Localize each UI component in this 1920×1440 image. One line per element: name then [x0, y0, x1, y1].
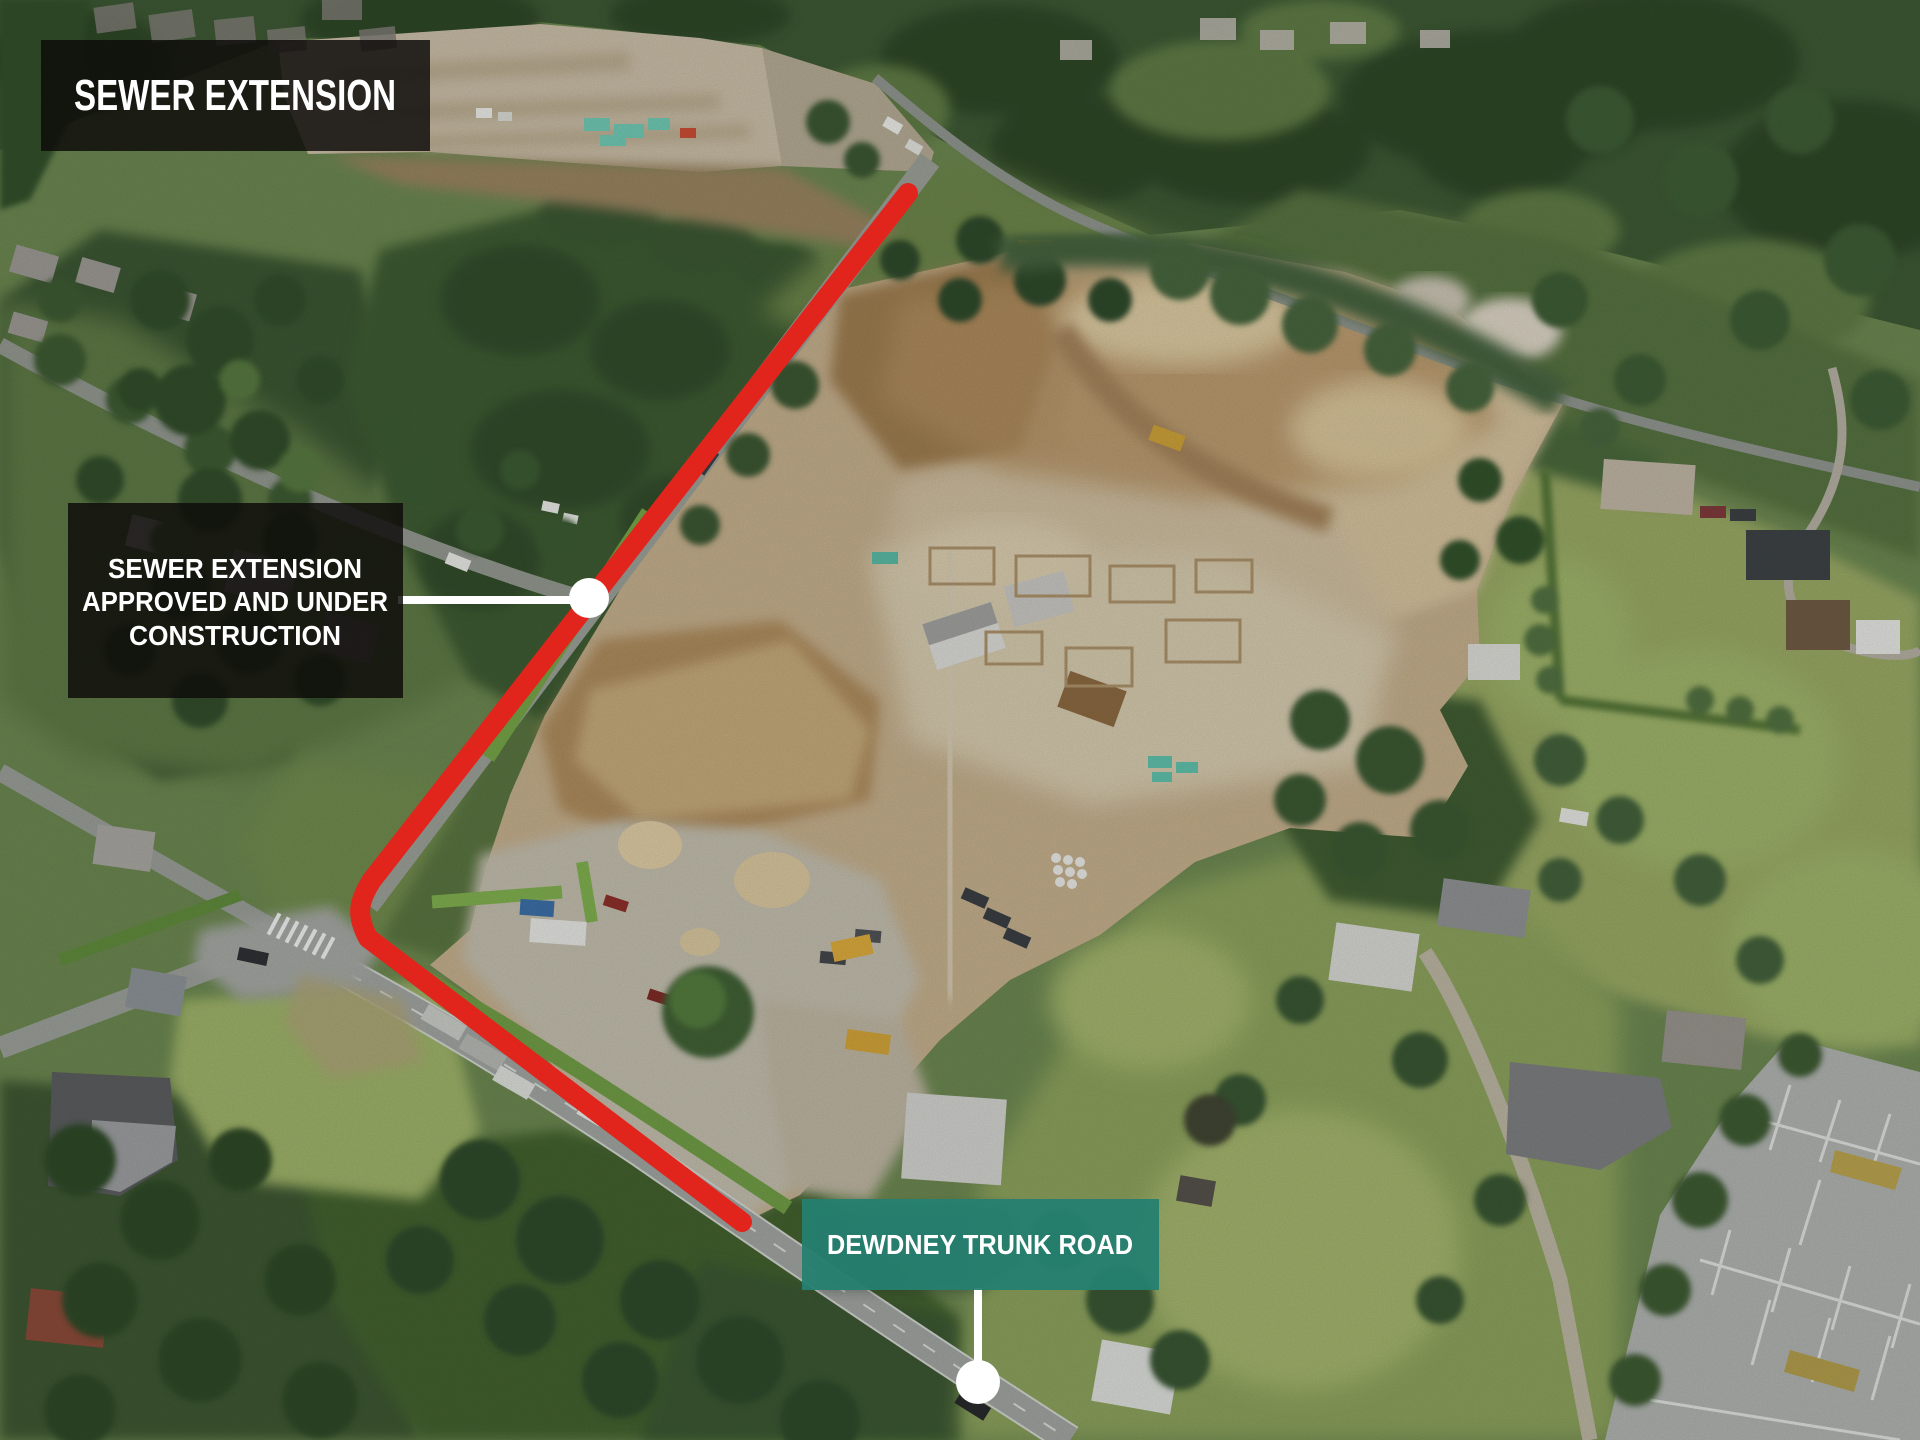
- svg-text:SEWER EXTENSION: SEWER EXTENSION: [108, 553, 362, 584]
- svg-text:SEWER EXTENSION: SEWER EXTENSION: [74, 71, 396, 120]
- svg-text:DEWDNEY TRUNK ROAD: DEWDNEY TRUNK ROAD: [827, 1229, 1133, 1260]
- svg-text:CONSTRUCTION: CONSTRUCTION: [129, 620, 341, 651]
- svg-text:APPROVED AND UNDER: APPROVED AND UNDER: [82, 586, 388, 617]
